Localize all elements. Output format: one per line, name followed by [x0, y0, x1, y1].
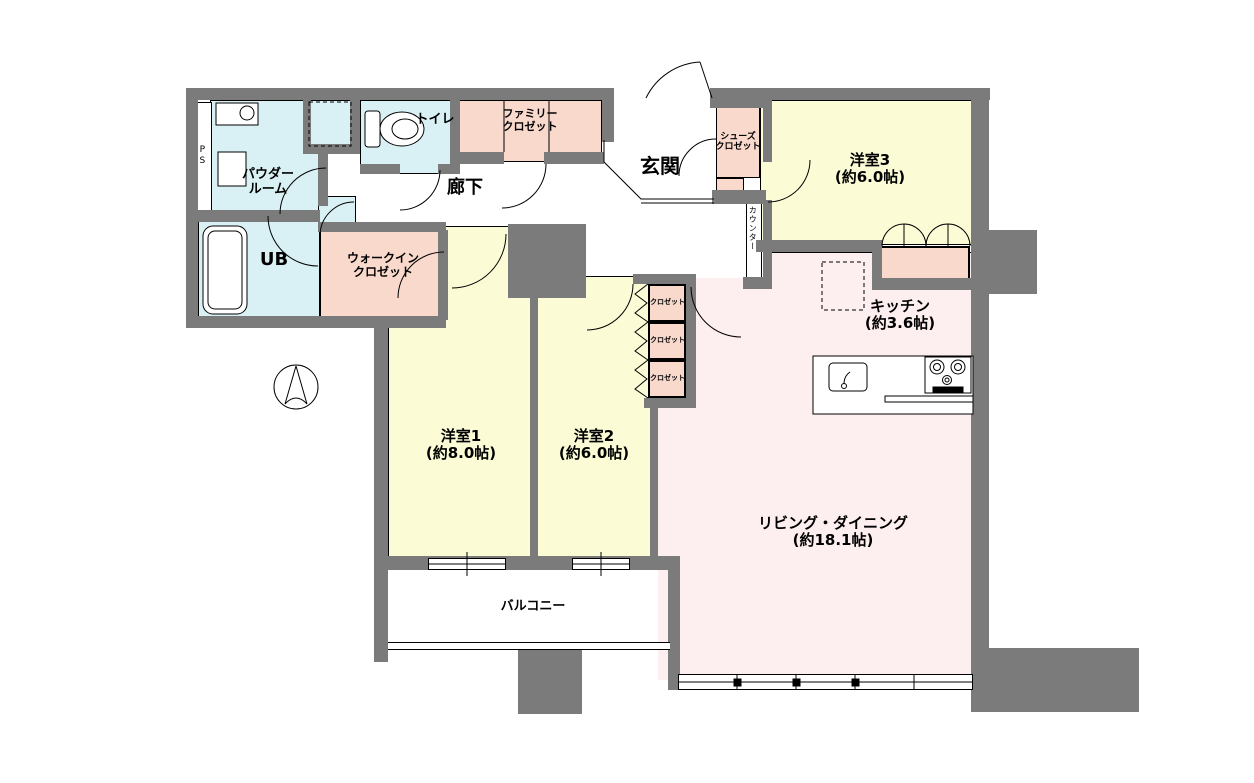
wall — [712, 190, 766, 204]
wall — [376, 556, 680, 570]
label-counter: カウンター — [748, 206, 757, 251]
wall — [198, 210, 320, 222]
wall — [350, 98, 360, 154]
balcony-railing — [388, 642, 670, 650]
label-yoshitsu3: 洋室3(約6.0帖) — [795, 152, 945, 187]
label-closet-1: クロゼット — [649, 298, 686, 306]
wall — [971, 88, 989, 662]
room-yoshitsu2 — [536, 276, 654, 562]
label-family-closet: ファミリークロゼット — [470, 108, 590, 133]
label-genkan: 玄関 — [618, 155, 702, 178]
label-pipe-space: PS — [197, 145, 207, 167]
wall — [756, 240, 882, 252]
wall — [458, 152, 504, 164]
label-closet-2: クロゼット — [649, 336, 686, 344]
label-walk-in-closet: ウォークインクロゼット — [328, 252, 438, 280]
label-yoshitsu2: 洋室2(約6.0帖) — [534, 428, 654, 463]
label-balcony: バルコニー — [478, 600, 588, 615]
label-yoshitsu1: 洋室1(約8.0帖) — [392, 428, 530, 463]
label-hallway: 廊下 — [425, 178, 505, 199]
wall — [650, 398, 658, 562]
wall-pillar — [971, 648, 1139, 712]
wall — [360, 164, 400, 174]
wall — [710, 98, 766, 108]
wall — [186, 88, 198, 322]
door-arc-hallway — [502, 164, 546, 208]
wall — [602, 98, 614, 142]
yoshitsu3-closet — [880, 246, 970, 280]
label-closet-3: クロゼット — [649, 374, 686, 382]
wall — [438, 164, 460, 174]
compass-north-icon — [274, 365, 318, 409]
wall — [686, 274, 696, 408]
wall — [743, 277, 772, 289]
floor-plan: パウダールーム UB トイレ ファミリークロゼット 廊下 玄関 シューズクロゼッ… — [0, 0, 1254, 783]
wall-pillar — [989, 230, 1037, 294]
label-unit-bath: UB — [244, 250, 304, 271]
wall-pillar — [518, 650, 582, 714]
washer-nook — [305, 100, 353, 150]
window — [428, 558, 506, 570]
wall — [186, 88, 614, 100]
wall — [544, 152, 604, 164]
wall — [438, 230, 448, 320]
wall — [763, 98, 772, 162]
entry-door-icon — [646, 62, 712, 98]
window — [678, 674, 973, 690]
wall — [872, 278, 973, 290]
label-kitchen: キッチン(約3.6帖) — [835, 298, 965, 333]
label-powder-room: パウダールーム — [222, 168, 314, 198]
wall — [303, 98, 311, 148]
wall — [668, 556, 680, 690]
wall — [374, 316, 388, 662]
window — [572, 558, 630, 570]
wall — [318, 148, 328, 206]
label-shoes-closet: シューズクロゼット — [714, 132, 762, 153]
label-toilet: トイレ — [410, 113, 460, 128]
wall — [303, 144, 353, 154]
wall-pillar — [508, 224, 586, 298]
wall — [186, 316, 446, 328]
wall — [318, 222, 446, 232]
label-living: リビング・ダイニング(約18.1帖) — [733, 515, 933, 550]
